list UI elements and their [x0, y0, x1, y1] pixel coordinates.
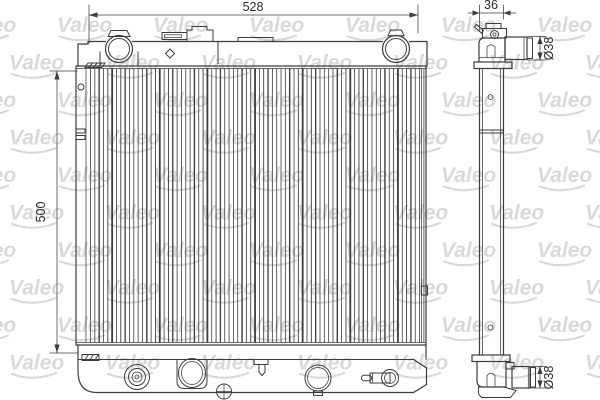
svg-text:Valeo: Valeo — [0, 314, 16, 337]
brand-watermark: Valeo — [537, 164, 592, 190]
svg-text:Valeo: Valeo — [441, 314, 496, 337]
brand-watermark: Valeo — [393, 202, 448, 228]
brand-watermark: Valeo — [105, 202, 160, 228]
brand-watermark: Valeo — [585, 127, 600, 153]
depth-dim-label: 36 — [484, 0, 498, 12]
svg-text:Valeo: Valeo — [537, 164, 592, 187]
svg-text:Valeo: Valeo — [201, 352, 256, 375]
brand-watermark: Valeo — [0, 14, 16, 40]
brand-watermark: Valeo — [441, 239, 496, 265]
svg-text:Valeo: Valeo — [0, 164, 16, 187]
brand-watermark: Valeo — [9, 277, 64, 303]
brand-watermark: Valeo — [585, 352, 600, 378]
svg-text:Valeo: Valeo — [57, 314, 112, 337]
svg-text:Valeo: Valeo — [57, 239, 112, 262]
svg-text:Valeo: Valeo — [489, 277, 544, 300]
outlet-boss-inner — [182, 362, 203, 385]
brand-watermark: Valeo — [153, 314, 208, 340]
svg-text:Valeo: Valeo — [537, 239, 592, 262]
drawing-canvas: ValeoValeoValeoValeoValeoValeoValeoValeo… — [0, 0, 600, 400]
diamond-hole — [166, 49, 175, 58]
brand-watermark: Valeo — [345, 164, 400, 190]
svg-text:Valeo: Valeo — [393, 52, 448, 75]
brand-watermark: Valeo — [153, 14, 208, 40]
brand-watermark: Valeo — [9, 352, 64, 378]
inlet-dia-label: Ø38 — [542, 37, 556, 61]
drain-pipe-body — [370, 373, 390, 383]
brand-watermark: Valeo — [489, 52, 544, 78]
brand-watermark: Valeo — [57, 164, 112, 190]
svg-text:Valeo: Valeo — [105, 202, 160, 225]
svg-text:Valeo: Valeo — [585, 202, 600, 225]
svg-text:Valeo: Valeo — [345, 314, 400, 337]
brand-watermark: Valeo — [393, 127, 448, 153]
brand-watermark: Valeo — [537, 314, 592, 340]
side-plate-tab — [76, 136, 85, 140]
brand-watermark: Valeo — [585, 52, 600, 78]
svg-text:Valeo: Valeo — [153, 239, 208, 262]
svg-text:Valeo: Valeo — [249, 14, 304, 37]
svg-text:Valeo: Valeo — [585, 277, 600, 300]
svg-text:Valeo: Valeo — [441, 14, 496, 37]
svg-text:Valeo: Valeo — [0, 14, 16, 37]
svg-text:Valeo: Valeo — [153, 164, 208, 187]
brand-watermark: Valeo — [489, 277, 544, 303]
brand-watermark: Valeo — [57, 239, 112, 265]
svg-text:Valeo: Valeo — [9, 277, 64, 300]
svg-text:Valeo: Valeo — [585, 52, 600, 75]
brand-watermark: Valeo — [9, 52, 64, 78]
svg-text:Valeo: Valeo — [585, 127, 600, 150]
svg-text:Valeo: Valeo — [393, 352, 448, 375]
lower-boss-tab — [314, 391, 323, 396]
svg-text:Valeo: Valeo — [585, 352, 600, 375]
svg-text:Valeo: Valeo — [57, 164, 112, 187]
foot-bracket — [479, 387, 517, 398]
svg-text:Valeo: Valeo — [57, 14, 112, 37]
brand-watermark: Valeo — [0, 164, 16, 190]
brand-watermark: Valeo — [0, 89, 16, 115]
brand-watermark: Valeo — [201, 352, 256, 378]
arrowhead-right — [410, 12, 419, 17]
svg-text:Valeo: Valeo — [105, 127, 160, 150]
brand-watermark: Valeo — [441, 89, 496, 115]
arrowhead-right — [504, 10, 511, 15]
brand-watermark: Valeo — [585, 277, 600, 303]
svg-text:Valeo: Valeo — [0, 89, 16, 112]
svg-text:Valeo: Valeo — [105, 352, 160, 375]
brand-watermark: Valeo — [345, 239, 400, 265]
svg-text:Valeo: Valeo — [345, 239, 400, 262]
svg-text:Valeo: Valeo — [105, 277, 160, 300]
brand-watermark: Valeo — [345, 89, 400, 115]
brand-watermark: Valeo — [249, 14, 304, 40]
brand-watermark: Valeo — [105, 52, 160, 78]
brand-watermark: Valeo — [393, 277, 448, 303]
brand-watermark: Valeo — [105, 277, 160, 303]
svg-text:Valeo: Valeo — [0, 239, 16, 262]
brand-watermark: Valeo — [585, 202, 600, 228]
width-dim-label: 528 — [243, 0, 264, 14]
brand-watermark: Valeo — [345, 314, 400, 340]
brand-watermark: Valeo — [0, 239, 16, 265]
svg-text:Valeo: Valeo — [537, 14, 592, 37]
brand-watermark: Valeo — [153, 164, 208, 190]
svg-text:Valeo: Valeo — [345, 14, 400, 37]
svg-text:Valeo: Valeo — [489, 202, 544, 225]
brand-watermark: Valeo — [105, 127, 160, 153]
brand-watermark: Valeo — [537, 239, 592, 265]
top-left-hatch — [85, 63, 105, 68]
brand-watermark: Valeo — [153, 89, 208, 115]
svg-text:Valeo: Valeo — [537, 314, 592, 337]
outlet-dia-label: Ø38 — [542, 366, 556, 390]
svg-text:Valeo: Valeo — [153, 89, 208, 112]
svg-text:Valeo: Valeo — [441, 239, 496, 262]
brand-watermark: Valeo — [393, 52, 448, 78]
height-dim-label: 500 — [34, 202, 48, 223]
brand-watermark: Valeo — [57, 14, 112, 40]
brand-watermark: Valeo — [57, 314, 112, 340]
svg-text:Valeo: Valeo — [153, 314, 208, 337]
brand-watermark: Valeo — [57, 89, 112, 115]
brand-watermark: Valeo — [537, 89, 592, 115]
side-plate-tab — [76, 129, 85, 133]
svg-text:Valeo: Valeo — [393, 127, 448, 150]
brand-watermark: Valeo — [441, 164, 496, 190]
svg-text:Valeo: Valeo — [9, 352, 64, 375]
svg-text:Valeo: Valeo — [489, 52, 544, 75]
brand-watermark: Valeo — [153, 239, 208, 265]
svg-text:Valeo: Valeo — [393, 202, 448, 225]
svg-text:Valeo: Valeo — [393, 277, 448, 300]
svg-text:Valeo: Valeo — [9, 127, 64, 150]
svg-text:Valeo: Valeo — [441, 164, 496, 187]
brand-watermark: Valeo — [489, 202, 544, 228]
svg-text:Valeo: Valeo — [345, 89, 400, 112]
svg-text:Valeo: Valeo — [441, 89, 496, 112]
svg-text:Valeo: Valeo — [57, 89, 112, 112]
svg-text:Valeo: Valeo — [345, 164, 400, 187]
svg-text:Valeo: Valeo — [537, 89, 592, 112]
svg-text:Valeo: Valeo — [105, 52, 160, 75]
brand-watermark: Valeo — [0, 314, 16, 340]
brand-watermark: Valeo — [9, 127, 64, 153]
svg-text:Valeo: Valeo — [153, 14, 208, 37]
clip-pin-prongs — [259, 365, 265, 376]
brand-watermark: Valeo — [441, 14, 496, 40]
svg-text:Valeo: Valeo — [297, 352, 352, 375]
